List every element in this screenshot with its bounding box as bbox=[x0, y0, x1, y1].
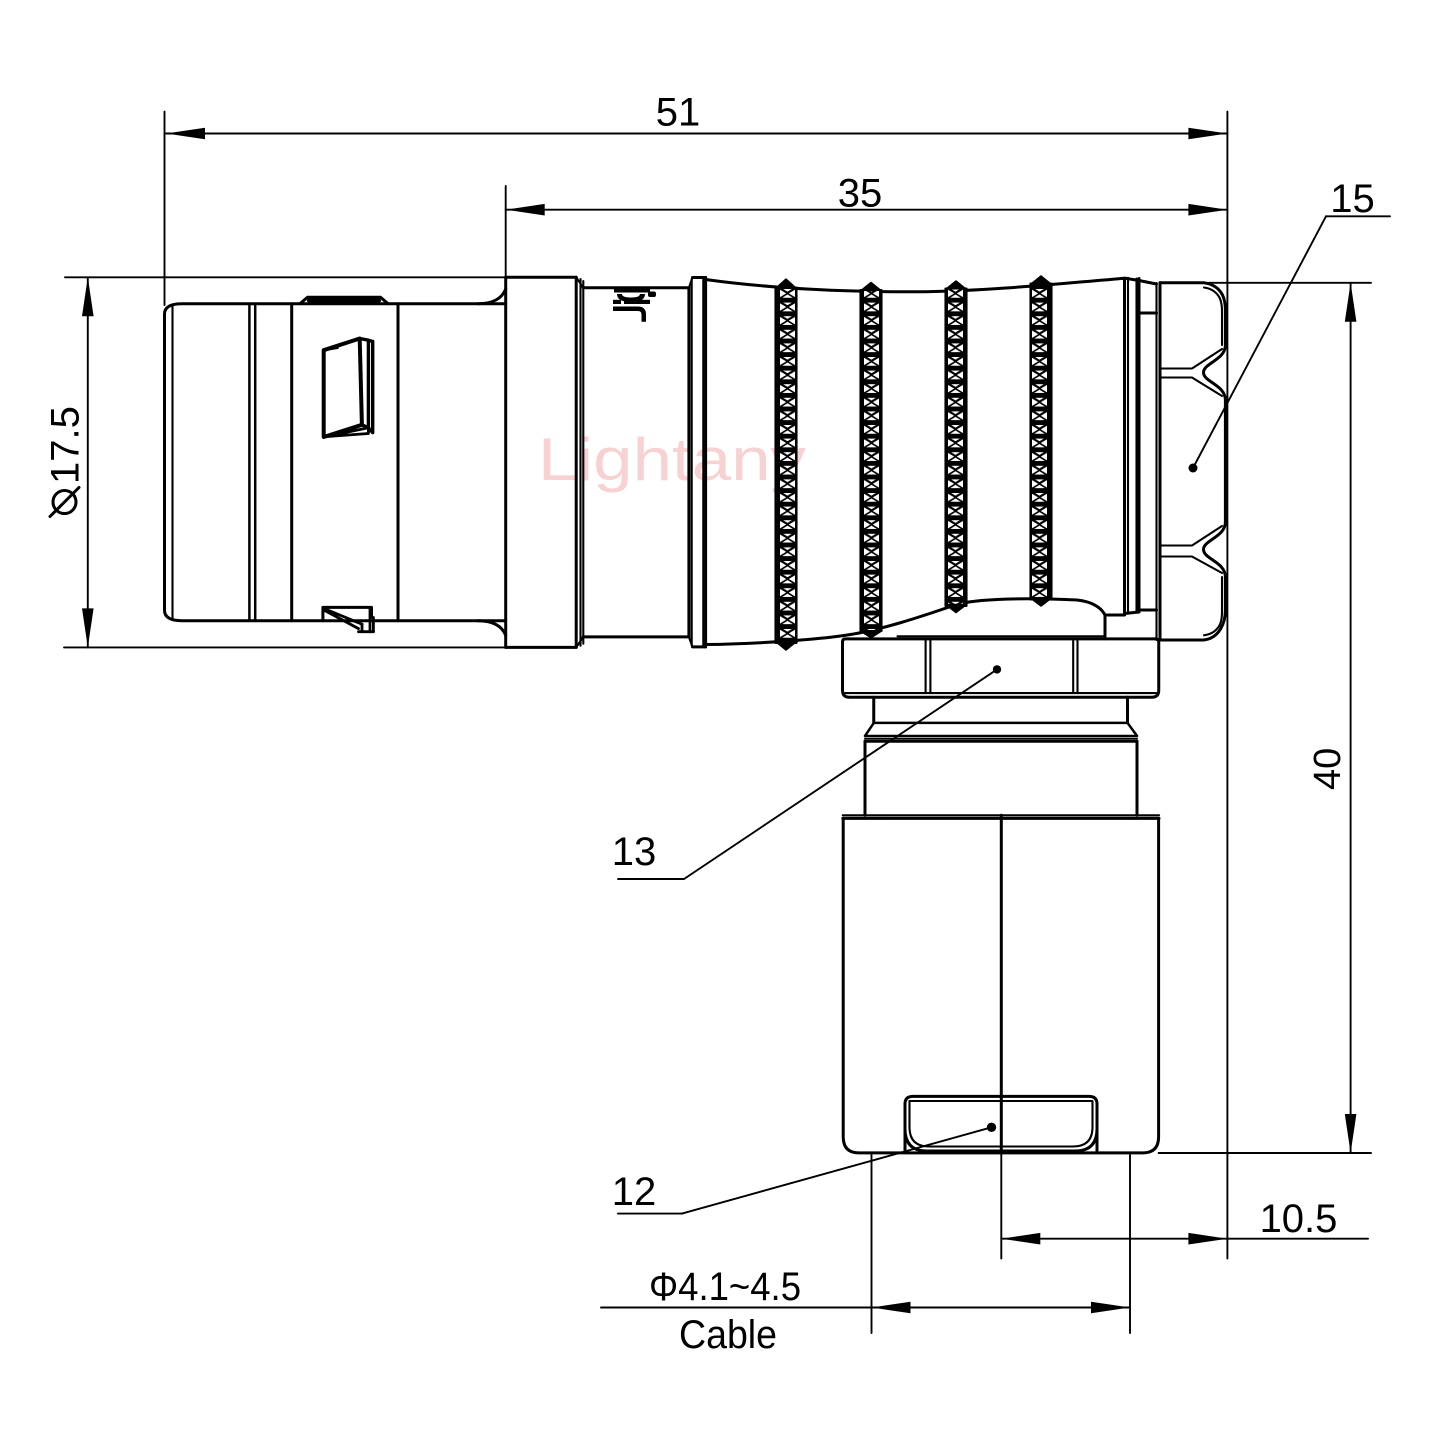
svg-text:15: 15 bbox=[1330, 177, 1375, 221]
svg-text:Φ4.1~4.5: Φ4.1~4.5 bbox=[649, 1265, 801, 1309]
svg-text:40: 40 bbox=[1307, 748, 1349, 790]
svg-text:13: 13 bbox=[612, 830, 657, 874]
svg-text:Cable: Cable bbox=[679, 1313, 777, 1357]
svg-text:Lightany: Lightany bbox=[538, 426, 806, 493]
svg-text:12: 12 bbox=[612, 1170, 657, 1214]
svg-text:10.5: 10.5 bbox=[1260, 1197, 1338, 1241]
svg-text:17.5: 17.5 bbox=[44, 406, 88, 484]
svg-text:35: 35 bbox=[838, 172, 883, 216]
svg-text:51: 51 bbox=[656, 90, 701, 134]
